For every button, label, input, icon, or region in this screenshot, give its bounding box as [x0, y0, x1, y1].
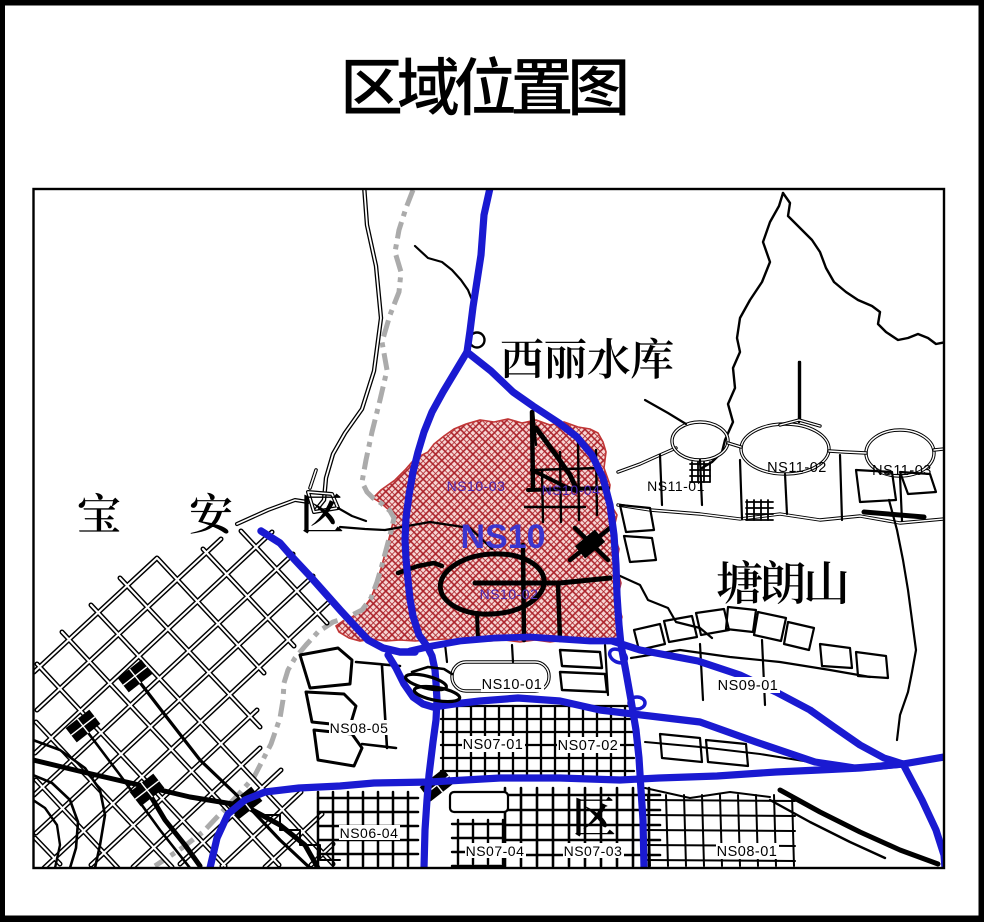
svg-text:NS11-03: NS11-03	[872, 463, 932, 479]
svg-text:NS09-01: NS09-01	[718, 678, 779, 694]
svg-text:NS07-03: NS07-03	[564, 843, 623, 859]
svg-text:NS10: NS10	[460, 518, 545, 556]
svg-text:NS10-01: NS10-01	[482, 677, 543, 693]
svg-text:NS11-02: NS11-02	[767, 460, 827, 476]
svg-text:NS07-01: NS07-01	[463, 737, 524, 753]
svg-text:NS11-01: NS11-01	[647, 478, 705, 494]
svg-text:NS10-02: NS10-02	[480, 586, 539, 602]
svg-text:NS07-02: NS07-02	[558, 738, 619, 754]
svg-text:NS08-01: NS08-01	[717, 844, 778, 860]
svg-text:NS10-03: NS10-03	[447, 478, 506, 494]
svg-text:NS10-04: NS10-04	[542, 482, 601, 498]
svg-text:NS08-05: NS08-05	[330, 720, 389, 736]
svg-text:NS06-04: NS06-04	[340, 825, 399, 841]
svg-text:NS07-04: NS07-04	[466, 843, 525, 859]
